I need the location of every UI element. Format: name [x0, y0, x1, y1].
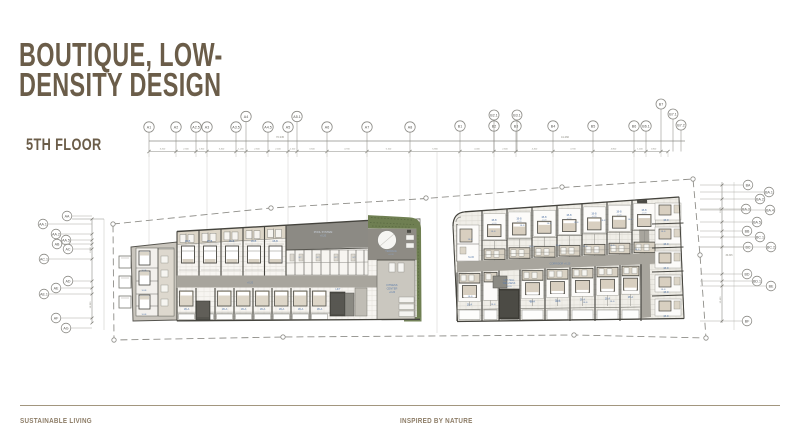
svg-text:A8: A8	[408, 125, 412, 129]
svg-text:B6.1: B6.1	[642, 124, 649, 128]
svg-text:2.600: 2.600	[254, 149, 260, 151]
svg-text:1B-B: 1B-B	[661, 289, 666, 291]
svg-text:1.200: 1.200	[238, 149, 244, 151]
svg-text:BC.2: BC.2	[767, 245, 775, 249]
svg-text:CENTER: CENTER	[387, 287, 398, 291]
svg-text:1B-A: 1B-A	[298, 308, 304, 311]
svg-text:BB: BB	[745, 229, 750, 233]
svg-text:1B-B: 1B-B	[541, 216, 547, 219]
svg-text:BD.1: BD.1	[753, 279, 761, 283]
svg-text:2.400: 2.400	[275, 149, 281, 151]
svg-text:1B-B: 1B-B	[529, 246, 534, 248]
svg-text:+0.20: +0.20	[641, 213, 647, 215]
svg-text:B3: B3	[514, 124, 518, 128]
svg-text:AC.1: AC.1	[40, 257, 48, 261]
svg-text:+0.20: +0.20	[541, 219, 547, 221]
svg-text:AE: AE	[54, 286, 59, 290]
svg-text:WC: WC	[298, 257, 302, 259]
svg-text:3.200: 3.200	[160, 149, 166, 151]
svg-text:BF: BF	[745, 319, 750, 323]
svg-text:1.400: 1.400	[637, 149, 643, 151]
svg-text:36.345: 36.345	[725, 255, 733, 257]
svg-text:2.300: 2.300	[183, 149, 189, 151]
svg-text:1B-A: 1B-A	[241, 308, 247, 311]
svg-text:B5: B5	[591, 124, 595, 128]
svg-text:BC.1: BC.1	[756, 235, 764, 239]
svg-text:WC: WC	[316, 257, 320, 259]
svg-text:B7.2: B7.2	[677, 123, 684, 127]
svg-text:70.345: 70.345	[276, 135, 284, 139]
svg-text:6.150: 6.150	[90, 246, 92, 252]
svg-text:1B-B: 1B-B	[610, 301, 615, 303]
svg-text:+0.20: +0.20	[591, 216, 597, 218]
svg-text:1B-B: 1B-B	[185, 240, 191, 243]
svg-text:A3: A3	[205, 125, 209, 129]
svg-text:LIFT: LIFT	[336, 288, 341, 291]
svg-text:4.700: 4.700	[344, 149, 350, 151]
svg-text:B2.1: B2.1	[490, 113, 497, 117]
svg-text:1B-B: 1B-B	[491, 219, 497, 222]
svg-text:1B-D: 1B-D	[663, 244, 669, 246]
svg-text:AA.2: AA.2	[52, 232, 60, 236]
svg-text:BA.5: BA.5	[753, 220, 761, 224]
svg-text:1.300: 1.300	[199, 149, 205, 151]
svg-text:1B-B: 1B-B	[207, 240, 213, 243]
svg-text:B7: B7	[659, 102, 663, 106]
svg-text:SU-B: SU-B	[142, 314, 147, 316]
svg-text:1B-B: 1B-B	[610, 245, 615, 247]
svg-text:1B-B: 1B-B	[616, 211, 622, 214]
svg-text:1B-A: 1B-A	[222, 308, 228, 311]
svg-text:41.260: 41.260	[561, 135, 569, 139]
svg-text:1B-A: 1B-A	[260, 308, 266, 311]
svg-text:A3.5: A3.5	[232, 125, 239, 129]
svg-text:CORRIDOR +0.20: CORRIDOR +0.20	[550, 263, 571, 266]
svg-text:1B-B: 1B-B	[272, 240, 278, 243]
svg-text:1.100: 1.100	[290, 149, 296, 151]
svg-text:5.100: 5.100	[386, 149, 392, 151]
svg-text:BA: BA	[746, 183, 751, 187]
svg-text:A5: A5	[286, 125, 290, 129]
svg-text:AC: AC	[66, 247, 71, 251]
svg-text:BC: BC	[746, 245, 751, 249]
svg-text:+0.20: +0.20	[388, 254, 394, 256]
svg-text:1B-B: 1B-B	[529, 301, 534, 303]
svg-text:4.000: 4.000	[474, 149, 480, 151]
svg-text:1B-B: 1B-B	[520, 225, 525, 227]
svg-text:A4: A4	[244, 115, 248, 119]
svg-text:1B-A: 1B-A	[279, 308, 285, 311]
svg-text:A1: A1	[147, 125, 151, 129]
svg-text:1B-B: 1B-B	[251, 240, 257, 243]
svg-text:BA.4: BA.4	[766, 208, 774, 212]
svg-text:A4.5: A4.5	[264, 125, 271, 129]
svg-text:A5.1: A5.1	[293, 115, 300, 119]
svg-text:1B-B: 1B-B	[635, 249, 640, 251]
svg-text:AF: AF	[54, 316, 59, 320]
svg-text:1B-B: 1B-B	[641, 209, 647, 212]
svg-text:BE: BE	[769, 284, 774, 288]
svg-text:A6: A6	[325, 125, 329, 129]
svg-text:+0.20: +0.20	[506, 286, 512, 288]
svg-text:4.700: 4.700	[570, 149, 576, 151]
svg-text:AA.1: AA.1	[39, 222, 47, 226]
svg-text:LIFT HALL: LIFT HALL	[503, 279, 515, 282]
svg-text:AG: AG	[63, 326, 68, 330]
svg-text:+0.20: +0.20	[320, 235, 327, 238]
svg-text:5.900: 5.900	[432, 149, 438, 151]
svg-text:1B-D: 1B-D	[663, 220, 669, 222]
svg-text:AB: AB	[55, 242, 60, 246]
svg-text:+0.20: +0.20	[389, 291, 396, 294]
svg-text:1B-B: 1B-B	[491, 304, 496, 306]
svg-text:1B-B: 1B-B	[628, 219, 633, 221]
svg-text:A2: A2	[174, 125, 178, 129]
svg-text:1B-B: 1B-B	[468, 239, 473, 241]
svg-text:AA.5: AA.5	[62, 238, 70, 242]
svg-text:BD: BD	[745, 272, 750, 276]
svg-text:1B-B: 1B-B	[591, 212, 597, 215]
svg-text:TERRACE: TERRACE	[385, 250, 397, 253]
svg-text:1B-B: 1B-B	[547, 223, 552, 225]
svg-text:1B-B: 1B-B	[661, 231, 666, 233]
svg-text:1B-B: 1B-B	[583, 302, 588, 304]
svg-text:+0.20: +0.20	[566, 218, 572, 220]
svg-text:1B-D: 1B-D	[663, 268, 669, 270]
svg-text:AE.1: AE.1	[40, 292, 48, 296]
svg-text:B3.1: B3.1	[513, 113, 520, 117]
svg-text:1B-B: 1B-B	[583, 246, 588, 248]
svg-text:10.800: 10.800	[90, 301, 92, 308]
svg-text:WELLNESS: WELLNESS	[503, 283, 516, 285]
svg-text:1B-B: 1B-B	[566, 214, 572, 217]
svg-text:A7: A7	[365, 125, 369, 129]
svg-text:1B-D: 1B-D	[663, 292, 669, 294]
svg-text:BA.3: BA.3	[742, 207, 750, 211]
svg-text:3.400: 3.400	[219, 149, 225, 151]
svg-text:WC: WC	[352, 257, 356, 259]
svg-text:FITNESS: FITNESS	[387, 283, 398, 287]
svg-text:1B-B: 1B-B	[516, 217, 522, 220]
svg-text:1.800: 1.800	[651, 149, 657, 151]
svg-text:2.600: 2.600	[502, 149, 508, 151]
svg-text:SU-B: SU-B	[468, 256, 474, 259]
svg-text:WC: WC	[334, 257, 338, 259]
svg-text:B4: B4	[551, 124, 555, 128]
svg-text:+0.20: +0.20	[516, 221, 522, 223]
svg-text:4.800: 4.800	[611, 149, 617, 151]
svg-text:A2.5: A2.5	[192, 125, 199, 129]
svg-text:4.400: 4.400	[532, 149, 538, 151]
svg-text:BA.2: BA.2	[756, 197, 764, 201]
svg-text:1B-B: 1B-B	[556, 301, 561, 303]
svg-text:BA.1: BA.1	[765, 190, 773, 194]
svg-text:B7.1: B7.1	[669, 112, 676, 116]
svg-text:1B-A: 1B-A	[317, 308, 323, 311]
svg-text:1B-B: 1B-B	[229, 240, 235, 243]
svg-text:1B-B: 1B-B	[601, 220, 606, 222]
svg-text:1B-A: 1B-A	[184, 308, 190, 311]
svg-text:B6: B6	[632, 124, 636, 128]
svg-text:8.125: 8.125	[720, 206, 722, 212]
svg-text:POOL SYSTEM: POOL SYSTEM	[314, 230, 333, 234]
svg-text:AA: AA	[65, 214, 70, 218]
svg-text:+0.20: +0.20	[247, 282, 254, 285]
svg-text:3.500: 3.500	[309, 149, 315, 151]
svg-text:B1: B1	[458, 124, 462, 128]
svg-text:1B-B: 1B-B	[468, 296, 473, 298]
svg-text:SU-B: SU-B	[142, 290, 147, 292]
svg-text:12.450: 12.450	[720, 296, 722, 303]
svg-text:1B-B: 1B-B	[556, 245, 561, 247]
svg-text:1B-B: 1B-B	[491, 231, 496, 233]
svg-text:+0.20: +0.20	[616, 214, 622, 216]
svg-text:1B-B: 1B-B	[574, 222, 579, 224]
svg-text:AD: AD	[66, 279, 71, 283]
svg-text:1B-D: 1B-D	[663, 316, 669, 318]
svg-text:+0.20: +0.20	[491, 223, 497, 225]
